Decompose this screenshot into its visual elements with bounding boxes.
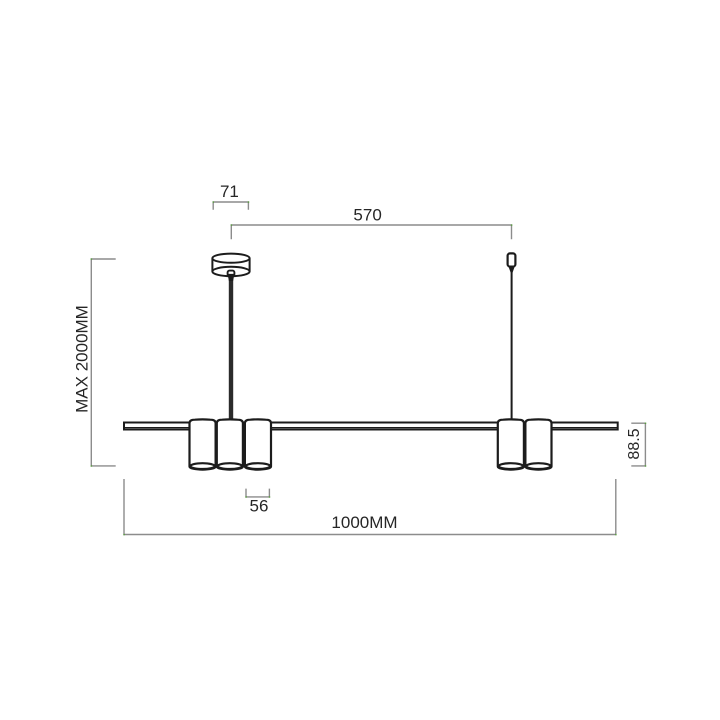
svg-text:570: 570 (353, 205, 381, 224)
svg-text:56: 56 (250, 497, 269, 516)
svg-text:88.5: 88.5 (626, 428, 643, 459)
svg-text:71: 71 (220, 182, 239, 201)
svg-text:MAX 2000MM: MAX 2000MM (73, 305, 92, 413)
svg-text:1000MM: 1000MM (331, 513, 397, 532)
